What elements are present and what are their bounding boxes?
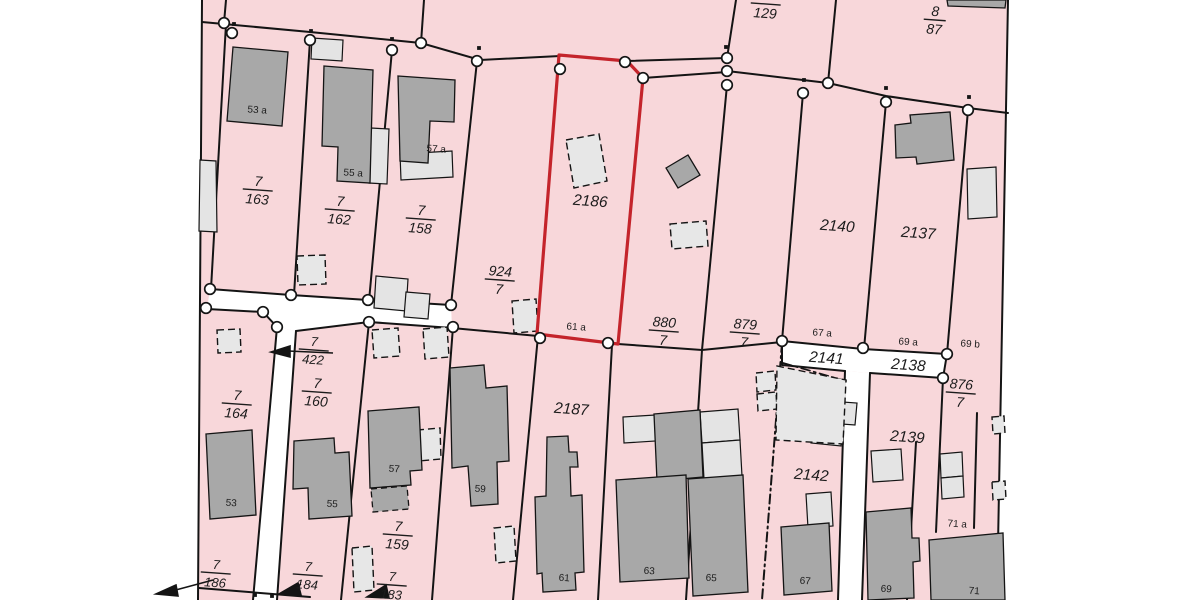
house-number-label: 61 a [566,321,587,333]
house-number-label: 57 [388,464,400,476]
building-63-upper [654,410,703,481]
boundary-dot [477,46,481,50]
parcel-number: 2142 [793,466,830,485]
building-69 [866,508,920,600]
cadastral-map: 1298877163716271589247880787978767742271… [0,0,1200,600]
house-number-label: 53 [225,498,237,510]
survey-point [881,97,892,108]
fraction-denominator: 158 [408,219,433,237]
house-number: 71 a [947,518,968,530]
house-number-label: 69 a [898,336,919,348]
boundary-dot [724,45,728,49]
house-number: 55 a [343,167,364,179]
building-top-right [947,0,1006,8]
survey-point [387,45,398,56]
house-number: 55 [326,499,338,511]
survey-point [416,38,427,49]
house-number-label: 55 a [343,167,364,179]
house-number-label: 61 [558,573,570,585]
fraction-denominator: 159 [385,535,410,553]
parcel-number-label: 2141 [808,349,845,368]
parcel-number: 2187 [553,400,591,420]
house-number: 53 a [247,104,268,116]
house-number: 69 b [960,338,981,350]
survey-point [258,307,269,318]
fraction-denominator: 164 [224,404,249,422]
house-number: 59 [474,484,486,496]
parcel-number: 2186 [572,192,609,211]
fraction-numerator: 924 [488,262,513,280]
parcel-number: 2137 [900,224,938,244]
survey-point [722,66,733,77]
fraction-denominator: 422 [302,351,325,368]
cadastral-map-viewport: 1298877163716271589247880787978767742271… [0,0,1200,600]
house-number-label: 67 a [812,327,833,339]
house-number-label: 57 a [426,143,447,155]
boundary-dot [390,37,394,41]
parcel-number-label: 2139 [889,428,926,447]
survey-point [286,290,297,301]
fraction-denominator: 160 [304,392,329,410]
survey-point [364,317,375,328]
house-number-label: 55 [326,499,338,511]
survey-point [555,64,566,75]
survey-point [722,53,733,64]
parcel-fraction-label: 129 [750,3,781,22]
house-number-label: 69 b [960,338,981,350]
house-number-label: 65 [705,573,717,585]
boundary-dot [232,22,236,26]
survey-point [858,343,869,354]
survey-point [201,303,212,314]
house-number: 61 [558,573,570,585]
building-65 [688,475,748,596]
boundary-dot [884,86,888,90]
house-number: 69 a [898,336,919,348]
house-number: 57 [388,464,400,476]
survey-point [722,80,733,91]
house-number-label: 71 a [947,518,968,530]
parcel-number: 2139 [889,428,926,447]
boundary-dot [253,593,257,597]
fraction-denominator: 162 [327,210,352,228]
parcel-number: 2138 [890,356,927,375]
building-57-annex [371,486,409,512]
survey-point [305,35,316,46]
boundary-dot [309,29,313,33]
parcel-number: 2140 [819,217,856,236]
fraction-denominator: 183 [380,586,403,600]
house-number-label: 71 [968,586,980,598]
survey-point [227,28,238,39]
survey-point [472,56,483,67]
house-number: 71 [968,586,980,598]
house-number: 63 [643,566,655,578]
parcel-number-label: 2142 [793,466,830,485]
parcel-number: 2141 [808,349,845,368]
fraction-denominator: 186 [204,574,227,591]
survey-point [603,338,614,349]
fraction-denominator: 163 [245,190,270,208]
survey-point [272,322,283,333]
house-number-label: 69 [880,584,892,596]
boundary-dot [967,95,971,99]
survey-point [777,336,788,347]
fraction-numerator: 880 [652,313,677,331]
house-number: 57 a [426,143,447,155]
survey-point [219,18,230,29]
fraction-denominator: 87 [926,20,944,37]
house-number: 53 [225,498,237,510]
house-number: 67 a [812,327,833,339]
fraction-numerator: 879 [733,315,758,333]
boundary-dot [270,594,274,598]
house-number-label: 59 [474,484,486,496]
parcel-number-label: 2137 [900,224,938,244]
house-number-label: 63 [643,566,655,578]
boundary-dot [802,78,806,82]
survey-point [620,57,631,68]
survey-point [448,322,459,333]
survey-point [205,284,216,295]
survey-point [638,73,649,84]
parcel-number-label: 2186 [572,192,609,211]
survey-point [963,105,974,116]
survey-point [535,333,546,344]
building-71 [929,533,1005,600]
fraction-denominator: 184 [296,576,319,592]
house-number-label: 53 a [247,104,268,116]
parcel-number-label: 2187 [553,400,591,420]
fraction-denominator: 129 [753,4,778,22]
house-number: 69 [880,584,892,596]
survey-point [798,88,809,99]
survey-point [942,349,953,360]
fraction-numerator: 876 [949,375,974,393]
dashed-building-large-2142 [776,366,846,444]
house-number: 67 [799,576,811,588]
parcel-number-label: 2140 [819,217,856,236]
survey-point [363,295,374,306]
fraction-numerator: 8 [931,3,940,20]
survey-point [823,78,834,89]
house-number-label: 67 [799,576,811,588]
survey-point [938,373,949,384]
house-number: 61 a [566,321,587,333]
parcel-number-label: 2138 [890,356,927,375]
survey-point [446,300,457,311]
house-number: 65 [705,573,717,585]
